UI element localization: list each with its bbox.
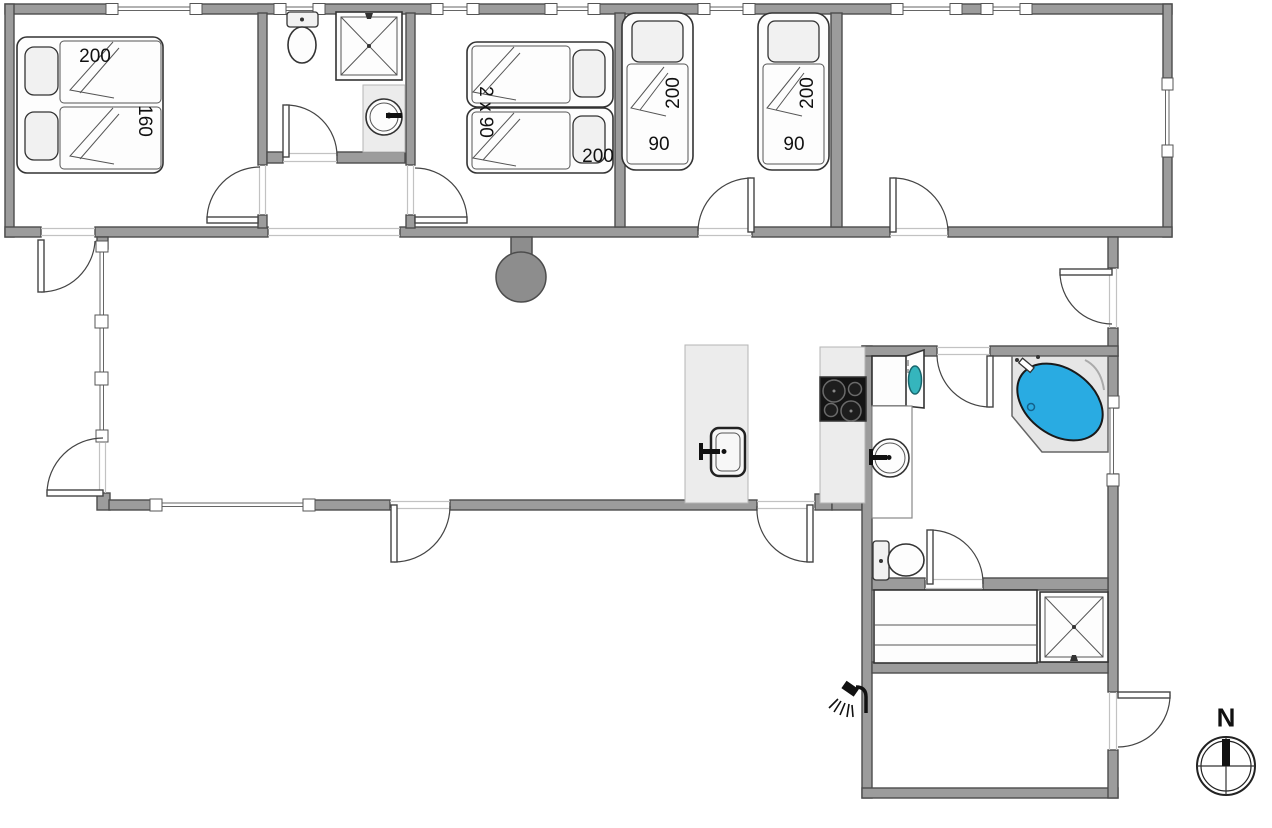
window-frame-cap [1107, 474, 1119, 486]
window-glass [1166, 90, 1170, 145]
window-frame-cap [467, 4, 479, 15]
door-swing-arc [207, 167, 260, 220]
faucet-handle [869, 449, 873, 465]
door-leaf [415, 217, 467, 223]
bed-dimension-label: 90 [783, 134, 804, 156]
door-swing-arc [757, 506, 810, 562]
counter [820, 347, 865, 503]
burner [825, 404, 838, 417]
window-frame-cap [1107, 396, 1119, 408]
door-swing-arc [47, 438, 103, 493]
door-exterior-east-utility [1118, 692, 1170, 747]
window-glass [100, 328, 104, 372]
wall [1030, 4, 1172, 14]
faucet-spout [887, 455, 892, 460]
door-swing-arc [930, 530, 983, 584]
window-frame-cap [431, 4, 443, 15]
bed-dimension-label: 160 [133, 105, 155, 137]
washbasin-bathroom [869, 406, 912, 518]
shower-head [841, 681, 858, 697]
threshold-line [890, 229, 948, 236]
window-frame-cap [96, 430, 108, 442]
door-exterior-southwest [47, 438, 103, 496]
door-exterior-south-1 [391, 505, 450, 562]
bed-dimension-label: 200 [582, 146, 614, 168]
wall [983, 578, 1108, 590]
threshold-line [937, 348, 990, 355]
threshold-line [698, 229, 752, 236]
pillow [25, 47, 58, 95]
toilet [287, 12, 318, 63]
door-swing-arc [394, 506, 450, 562]
wall [258, 13, 267, 165]
window-mullion [95, 372, 108, 385]
door-leaf [1118, 692, 1170, 698]
window-frame-cap [545, 4, 557, 15]
faucet-handle [699, 443, 703, 460]
bed-dimension-label: 200 [797, 77, 819, 109]
pillow [768, 21, 819, 62]
compass-north-label: N [1217, 703, 1236, 734]
window-frame-cap [743, 4, 755, 15]
wall [267, 152, 283, 163]
toilet-bathroom [873, 541, 924, 580]
window-frame-cap [150, 499, 162, 511]
kitchen-island [685, 345, 748, 503]
wall [752, 227, 890, 237]
wall [1163, 4, 1172, 78]
wall [862, 346, 937, 356]
door-toilet-room [283, 105, 337, 157]
wall [960, 4, 983, 14]
wall [948, 227, 1172, 237]
door-leaf [283, 105, 289, 157]
washing-machine [872, 350, 924, 408]
door-leaf [987, 356, 993, 407]
bed-dimension-label: 90 [648, 134, 669, 156]
door-sauna [927, 530, 983, 584]
window-frame-cap [274, 4, 286, 15]
wall [1108, 237, 1118, 268]
door-bedroom-2 [415, 168, 467, 223]
toilet-flush-button [879, 559, 883, 563]
door-leaf [38, 240, 44, 292]
threshold-line [268, 229, 400, 236]
threshold-line [757, 502, 815, 509]
window-frame-cap [303, 499, 315, 511]
door-leaf [748, 178, 754, 232]
toilet-bowl [288, 27, 316, 63]
wall [406, 215, 415, 228]
window-glass [152, 503, 313, 507]
wall [862, 788, 1118, 798]
washer-door [909, 366, 922, 394]
door-swing-arc [1060, 272, 1112, 324]
door-swing-arc [1118, 695, 1170, 747]
door-exterior-south-2 [757, 505, 813, 562]
toilet-flush-button [300, 18, 304, 22]
kitchen-counter [820, 347, 866, 503]
pillow [632, 21, 683, 62]
threshold-line [390, 502, 450, 509]
door-leaf [391, 505, 397, 562]
window-glass [1110, 408, 1114, 474]
window-mullion [95, 315, 108, 328]
wall [1108, 750, 1118, 798]
window-frame-cap [950, 4, 962, 15]
threshold-line [1110, 692, 1117, 750]
toilet-bowl [888, 544, 924, 576]
wall [990, 346, 1118, 356]
window-frame-cap [588, 4, 600, 15]
threshold-line [1110, 268, 1117, 328]
door-swing-arc [698, 178, 751, 231]
faucet-spout [722, 449, 727, 454]
wall [95, 227, 268, 237]
shower-cabin-top [336, 12, 402, 80]
fireplace [496, 237, 546, 302]
window-glass [108, 7, 200, 11]
wall [406, 13, 415, 165]
burner-dot [850, 410, 853, 413]
window-frame-cap [891, 4, 903, 15]
door-leaf [927, 530, 933, 584]
window-glass [100, 385, 104, 430]
window-frame-cap [1162, 145, 1173, 157]
threshold-line [260, 165, 266, 215]
window-frame-cap [96, 241, 108, 252]
threshold-line [925, 580, 983, 589]
door-swing-arc [286, 105, 337, 156]
wall [5, 4, 14, 237]
compass [1197, 737, 1255, 795]
shower-drain [1072, 625, 1076, 629]
door-exterior-east-living [1060, 269, 1112, 324]
wall [477, 4, 547, 14]
outdoor-shower-icon [829, 681, 866, 717]
bed-dimension-label: 2 x 90 [474, 86, 496, 138]
pillow [25, 112, 58, 160]
wall [5, 4, 108, 14]
wall [337, 152, 405, 163]
bench-frame [874, 590, 1037, 663]
burner [849, 383, 862, 396]
fireplace-stove [496, 252, 546, 302]
window-frame-cap [698, 4, 710, 15]
door-leaf [890, 178, 896, 232]
island-counter [685, 345, 748, 503]
shower-spray [829, 699, 853, 717]
faucet-knob [1015, 358, 1019, 362]
bed-dimension-label: 200 [663, 77, 685, 109]
door-exterior-northwest [38, 240, 95, 292]
wall [109, 500, 152, 510]
wall [5, 227, 41, 237]
door-annex-room [890, 178, 948, 232]
door-swing-arc [937, 356, 990, 407]
compass-needle [1222, 739, 1230, 766]
floor-plan-drawing [0, 0, 1272, 828]
window-frame-cap [190, 4, 202, 15]
shower-cabin-bottom [1040, 592, 1108, 662]
wall [831, 13, 842, 227]
floor-plan: 200 160 2 x 90 200 200 90 200 90 N [0, 0, 1272, 828]
threshold-line [283, 154, 337, 162]
door-leaf [1060, 269, 1112, 275]
wall [258, 215, 267, 228]
burner-dot [833, 390, 836, 393]
pillow [573, 50, 605, 97]
door-leaf [47, 490, 103, 496]
sauna-bench [874, 590, 1037, 663]
door-bedroom-1 [207, 167, 260, 223]
window-frame-cap [981, 4, 993, 15]
door-bedroom-3 [698, 178, 754, 232]
wall [1163, 157, 1172, 237]
threshold-line [100, 443, 106, 493]
door-swing-arc [415, 168, 467, 220]
washbasin-top [363, 85, 405, 152]
window-glass [100, 252, 104, 315]
window-frame-cap [106, 4, 118, 15]
door-leaf [207, 217, 258, 223]
window-frame-cap [1162, 78, 1173, 90]
wall [313, 500, 390, 510]
faucet-knob [386, 113, 392, 119]
door-bathroom [937, 356, 993, 407]
faucet-knob [1036, 355, 1040, 359]
door-swing-arc [41, 241, 95, 292]
door-swing-arc [893, 178, 948, 231]
corner-bathtub [1003, 348, 1118, 457]
wall [400, 227, 698, 237]
shower-drain [367, 44, 371, 48]
window-frame-cap [1020, 4, 1032, 15]
wall [1108, 474, 1118, 692]
threshold-line [408, 165, 414, 215]
bed-dimension-label: 200 [79, 46, 111, 68]
door-leaf [807, 505, 813, 562]
threshold-line [41, 229, 95, 236]
